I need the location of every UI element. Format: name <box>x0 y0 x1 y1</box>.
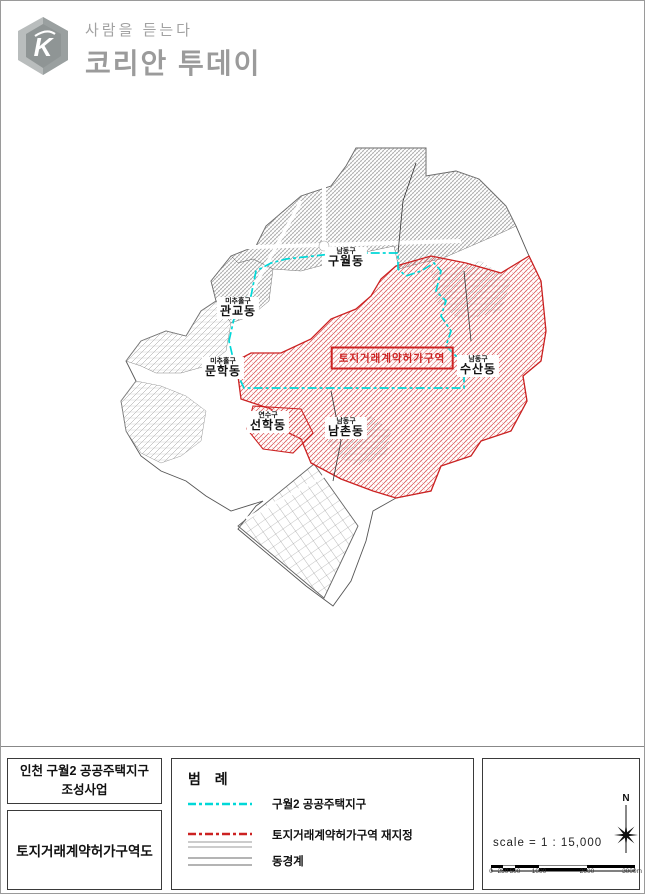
project-title-box: 인천 구월2 공공주택지구 조성사업 <box>7 758 162 804</box>
scale-tick-500: 500 <box>510 868 521 875</box>
map-title-box: 토지거래계약허가구역도 <box>7 810 162 890</box>
label-namchon-dong: 남동구 남촌동 <box>325 417 367 439</box>
brand-block: 사람을 듣는다 코리안 투데이 <box>85 19 261 82</box>
label-guwol-dong: 남동구 구월동 <box>325 247 367 269</box>
scale-tick-1000: 1000 <box>532 868 546 875</box>
label-seonhak-dong: 연수구 선학동 <box>247 411 289 433</box>
legend-item-2-label: 토지거래계약허가구역 재지정 <box>272 827 413 843</box>
label-susan-dong: 남동구 수산동 <box>457 355 499 377</box>
footer-panel: 인천 구월2 공공주택지구 조성사업 토지거래계약허가구역도 범 례 구월2 공… <box>1 756 645 894</box>
scale-tick-2000: 2000 <box>580 868 594 875</box>
label-munhak-dong: 미추홀구 문학동 <box>202 357 244 379</box>
scale-text: scale = 1 : 15,000 <box>493 837 602 849</box>
legend-swatch-gray-double <box>188 855 252 867</box>
project-title-line2: 조성사업 <box>61 783 107 797</box>
legend-swatch-red-dashdot <box>188 831 252 849</box>
svg-text:K: K <box>34 32 55 62</box>
legend-item-1-label: 구월2 공공주택지구 <box>272 796 366 812</box>
header: K 사람을 듣는다 코리안 투데이 <box>1 1 644 91</box>
map-sheet-page: K 사람을 듣는다 코리안 투데이 <box>0 0 645 894</box>
scale-box: N scale = 1 : 15,000 0 250 500 <box>482 758 640 890</box>
legend-item-3-label: 동경계 <box>272 853 304 869</box>
legend-title: 범 례 <box>188 769 233 789</box>
scale-bar: 0 250 500 1000 2000 3000m <box>491 859 635 883</box>
brand-title: 코리안 투데이 <box>85 42 261 82</box>
legend-swatch-cyan-dashdot <box>188 801 252 807</box>
scale-tick-250: 250 <box>498 868 509 875</box>
project-title-line1: 인천 구월2 공공주택지구 <box>20 764 149 778</box>
cadastral-map-graphic <box>1 91 645 747</box>
brand-tagline: 사람을 듣는다 <box>85 19 261 40</box>
map-area: 남동구 구월동 미추홀구 관교동 미추홀구 문학동 남동구 수산동 연수구 선학… <box>1 91 645 747</box>
korean-today-logo-icon: K <box>11 14 75 78</box>
compass-star-icon <box>601 793 645 855</box>
label-gwangyo-dong: 미추홀구 관교동 <box>217 297 259 319</box>
scale-tick-3000: 3000m <box>622 868 642 875</box>
north-indicator: N <box>601 793 645 855</box>
legend-box: 범 례 구월2 공공주택지구 토지거래계약허가구역 재지정 동경계 <box>171 758 474 890</box>
scale-tick-0: 0 <box>489 868 493 875</box>
restricted-zone-title-box: 토지거래계약허가구역 <box>331 347 454 370</box>
